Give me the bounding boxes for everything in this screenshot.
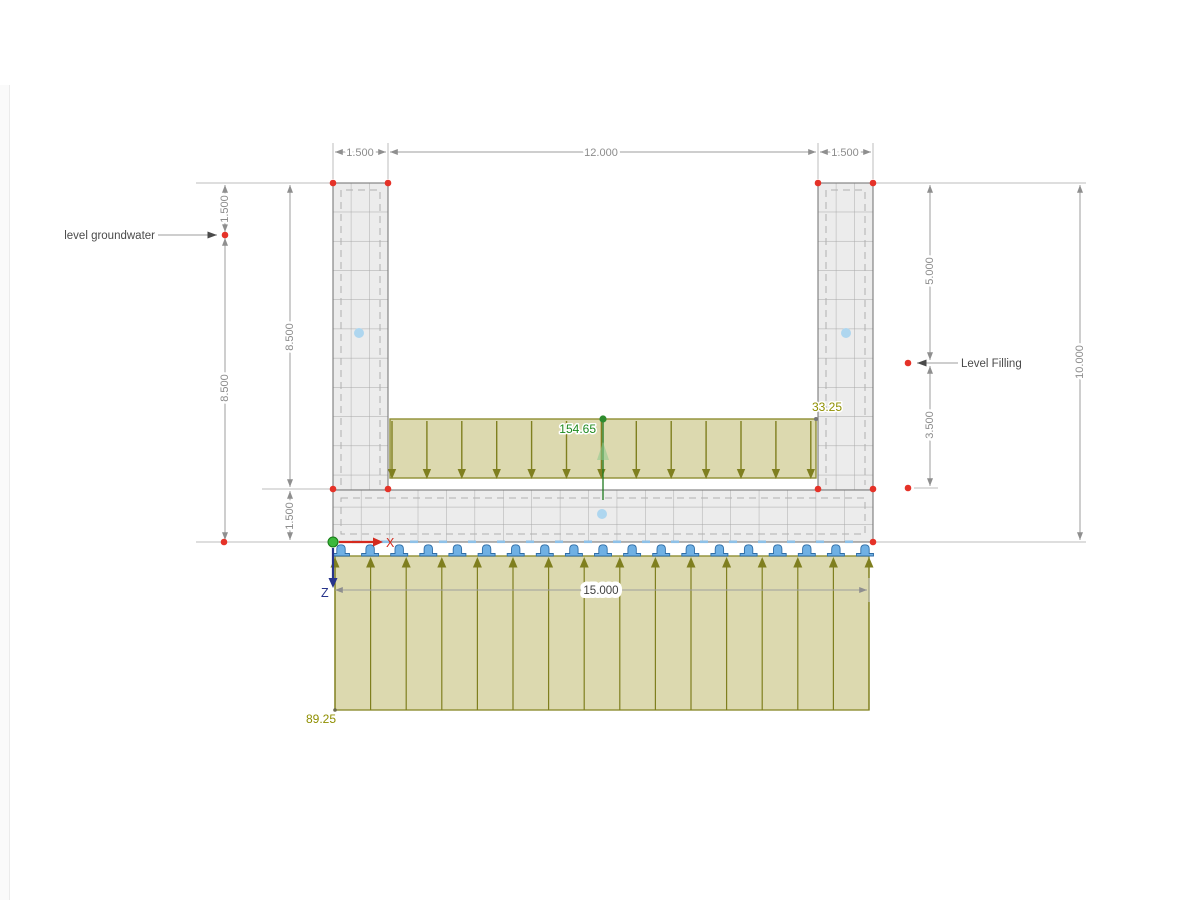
surface-marker-left-wall[interactable] (354, 328, 364, 338)
support-icon[interactable] (769, 545, 786, 556)
soil-pressure-load[interactable] (331, 556, 874, 712)
node[interactable] (870, 486, 877, 493)
node[interactable] (385, 486, 392, 493)
support-icon[interactable] (595, 545, 612, 556)
dim-left-outer-upper: 1.500 (219, 195, 231, 223)
support-icon[interactable] (857, 545, 874, 556)
node[interactable] (385, 180, 392, 187)
support-icon[interactable] (653, 545, 670, 556)
node[interactable] (330, 486, 337, 493)
filling-level-node[interactable] (905, 360, 912, 367)
load-corner-node (814, 417, 818, 421)
center-node[interactable] (599, 415, 606, 422)
support-icon[interactable] (682, 545, 699, 556)
support-icon[interactable] (624, 545, 641, 556)
filling-label: Level Filling (961, 358, 1022, 370)
support-icon[interactable] (565, 545, 582, 556)
support-icon[interactable] (478, 545, 495, 556)
dim-right-inner-lower: 3.500 (924, 411, 936, 439)
support-icon[interactable] (711, 545, 728, 556)
filling-load-value[interactable]: 154.65 (559, 422, 596, 436)
surface-marker-base[interactable] (597, 509, 607, 519)
origin-node[interactable] (328, 537, 338, 547)
support-icon[interactable] (798, 545, 815, 556)
support-icon[interactable] (449, 545, 466, 556)
support-icon[interactable] (507, 545, 524, 556)
support-icon[interactable] (740, 545, 757, 556)
filling-load-edge-value[interactable]: 33.25 (812, 400, 842, 414)
dim-left-outer-lower: 8.500 (219, 374, 231, 402)
dim-bottom-width: 15.000 (583, 585, 618, 597)
node[interactable] (905, 485, 912, 492)
viewport-edge (0, 85, 10, 900)
node[interactable] (221, 539, 228, 546)
node[interactable] (815, 180, 822, 187)
surface-marker-right-wall[interactable] (841, 328, 851, 338)
support-icon[interactable] (362, 545, 379, 556)
support-icon[interactable] (536, 545, 553, 556)
node[interactable] (330, 180, 337, 187)
dim-top-center: 12.000 (584, 147, 618, 159)
z-axis-label: Z (321, 586, 329, 600)
dim-top-right: 1.500 (831, 147, 859, 159)
node[interactable] (870, 539, 877, 546)
groundwater-level-node[interactable] (222, 232, 229, 239)
support-icon[interactable] (420, 545, 437, 556)
dim-right-outer: 10.000 (1074, 345, 1086, 379)
node[interactable] (870, 180, 877, 187)
soil-load-value[interactable]: 89.25 (306, 712, 336, 726)
annotations: level groundwater Level Filling (64, 230, 1022, 370)
dim-right-inner-upper: 5.000 (924, 257, 936, 285)
surface-elastic-supports[interactable] (333, 541, 874, 557)
dim-top-left: 1.500 (346, 147, 374, 159)
x-axis-label: X (386, 536, 395, 550)
dim-left-inner-lower: 1.500 (284, 502, 296, 530)
dim-left-inner-upper: 8.500 (284, 323, 296, 351)
node[interactable] (815, 486, 822, 493)
groundwater-label: level groundwater (64, 230, 155, 242)
support-icon[interactable] (827, 545, 844, 556)
model-canvas[interactable]: 1.500 12.000 1.500 1.500 8.500 8.500 1.5… (0, 0, 1200, 900)
